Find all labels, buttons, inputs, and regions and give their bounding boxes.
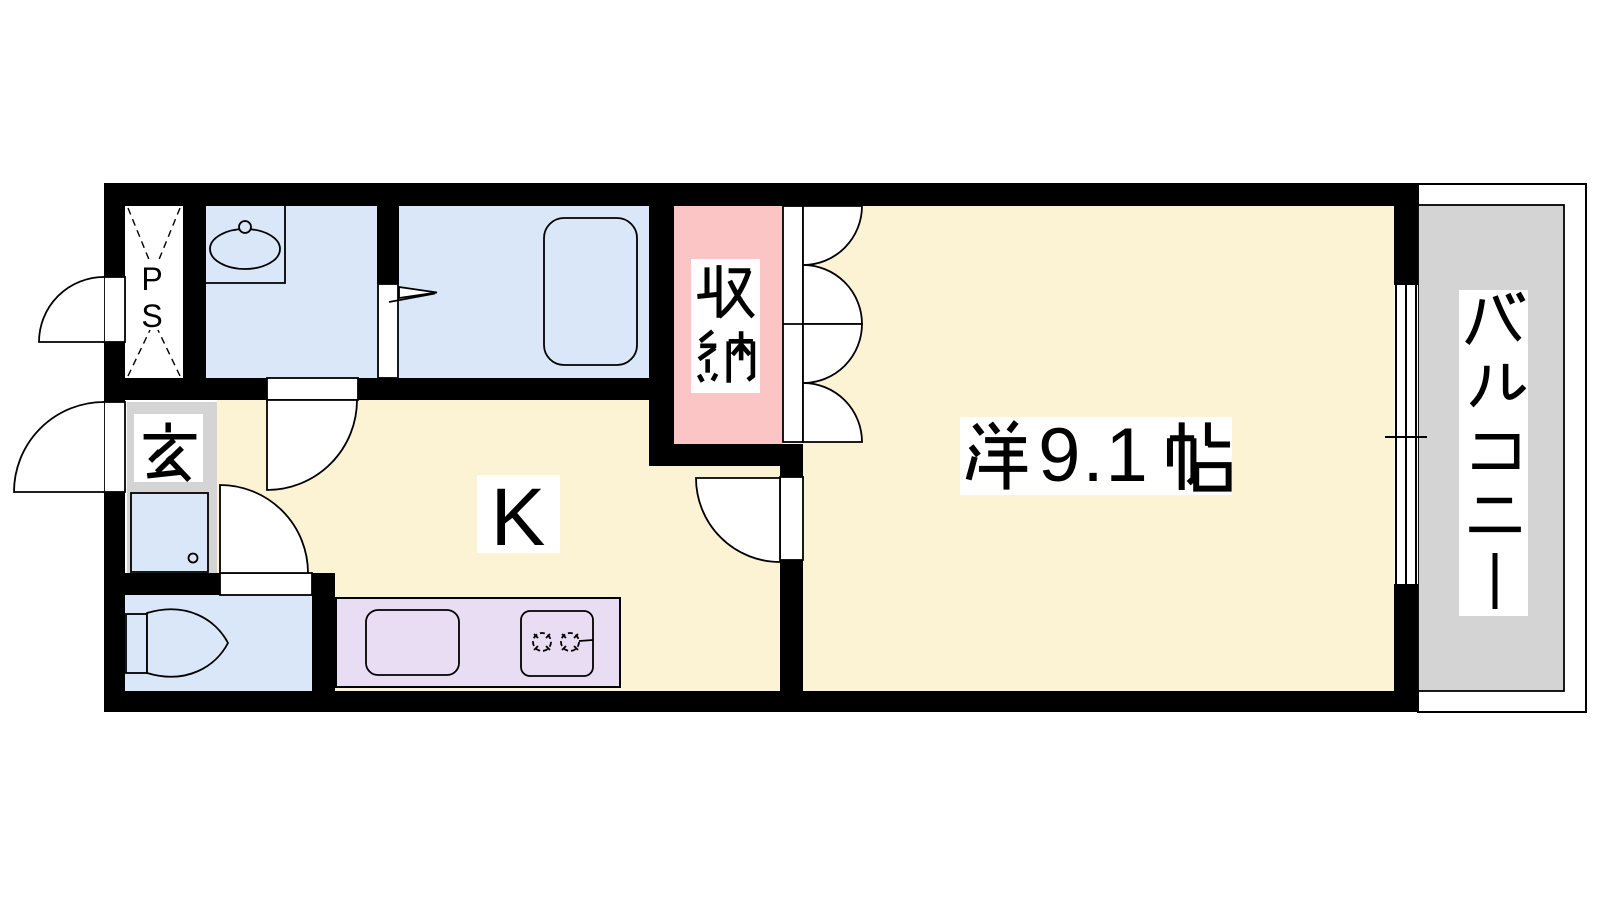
svg-text:S: S bbox=[141, 298, 162, 334]
svg-text:K: K bbox=[491, 472, 546, 563]
svg-text:9.1: 9.1 bbox=[1038, 413, 1150, 498]
svg-text:P: P bbox=[141, 261, 162, 297]
